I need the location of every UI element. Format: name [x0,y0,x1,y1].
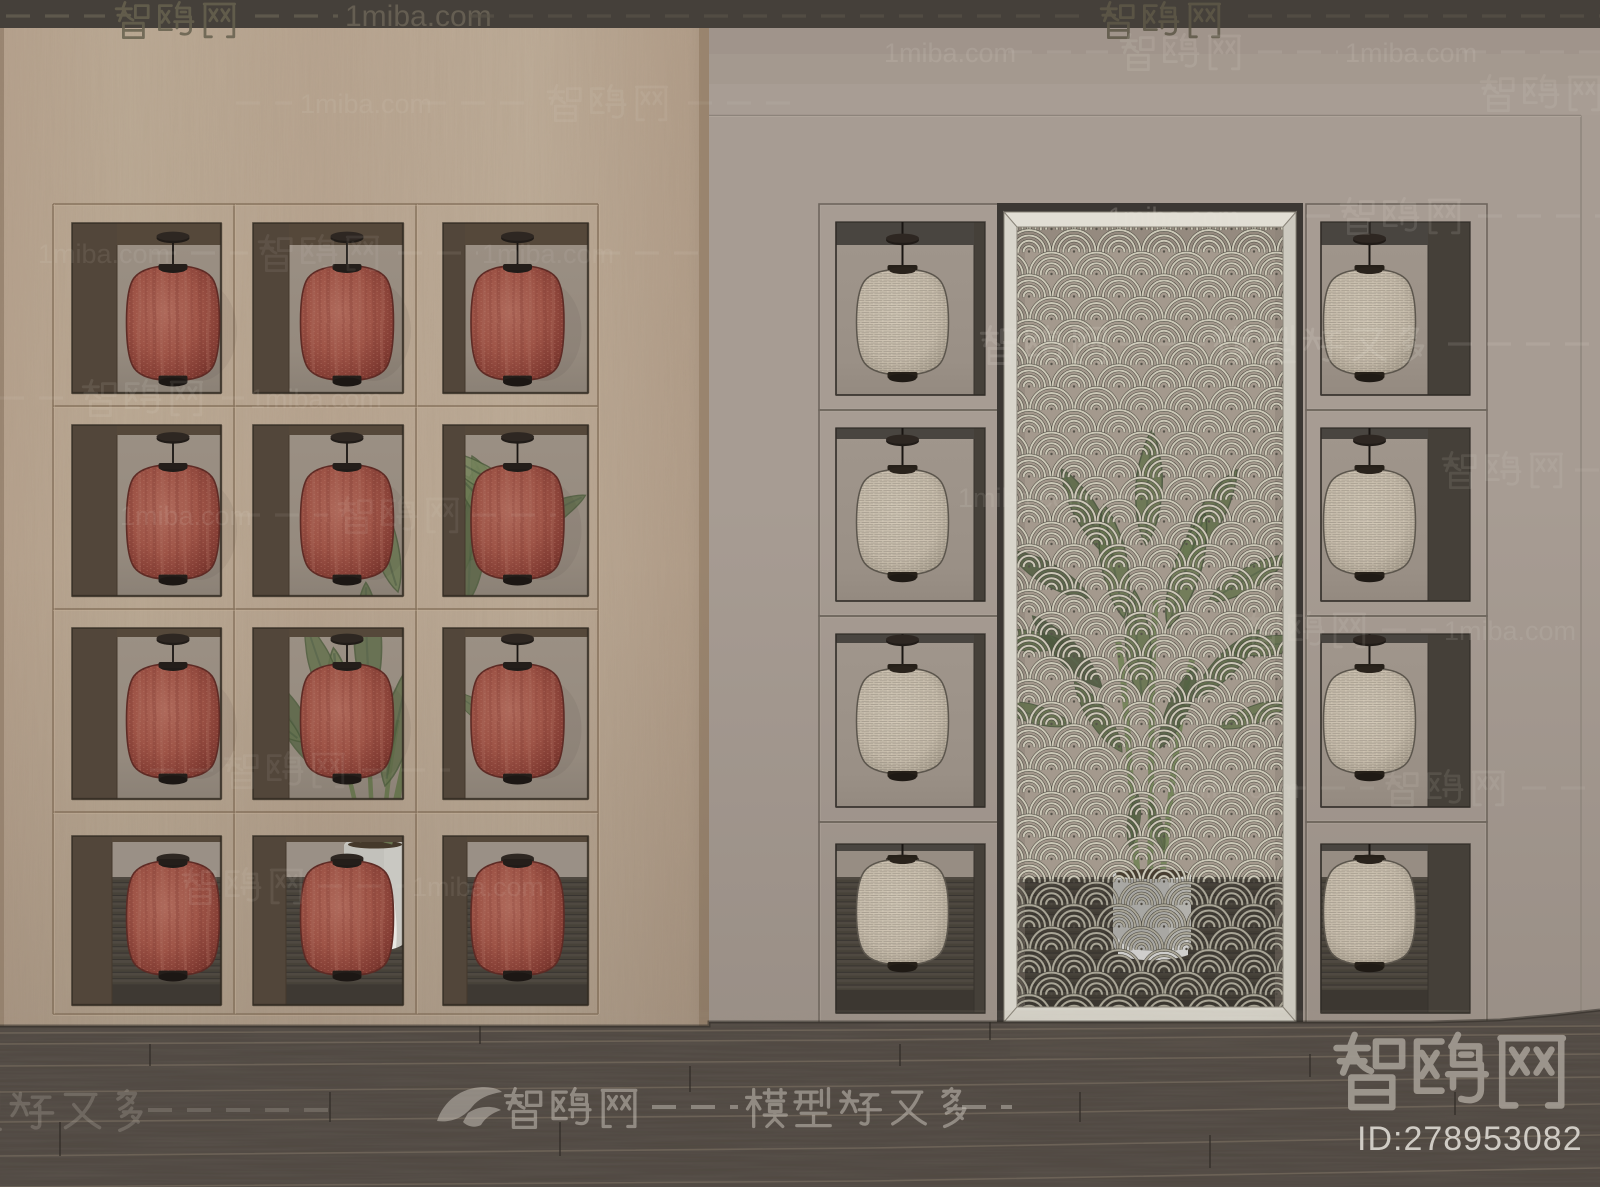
svg-text:1miba.com: 1miba.com [884,38,1016,68]
svg-text:1miba.com: 1miba.com [38,239,170,269]
svg-text:ID:278953082: ID:278953082 [1357,1120,1583,1158]
svg-text:1miba.com: 1miba.com [1444,616,1576,646]
svg-text:1miba.com: 1miba.com [958,483,1090,513]
svg-text:1miba.com: 1miba.com [300,89,432,119]
svg-text:1miba.com: 1miba.com [1168,774,1300,804]
svg-text:1miba.com: 1miba.com [482,239,614,269]
svg-text:1miba.com: 1miba.com [250,384,382,414]
svg-text:1miba.com: 1miba.com [345,0,492,33]
svg-text:1miba.com: 1miba.com [120,501,252,531]
svg-text:1miba.com: 1miba.com [412,872,544,902]
svg-text:1miba.com: 1miba.com [1345,38,1477,68]
svg-text:1miba.com: 1miba.com [1108,202,1240,232]
